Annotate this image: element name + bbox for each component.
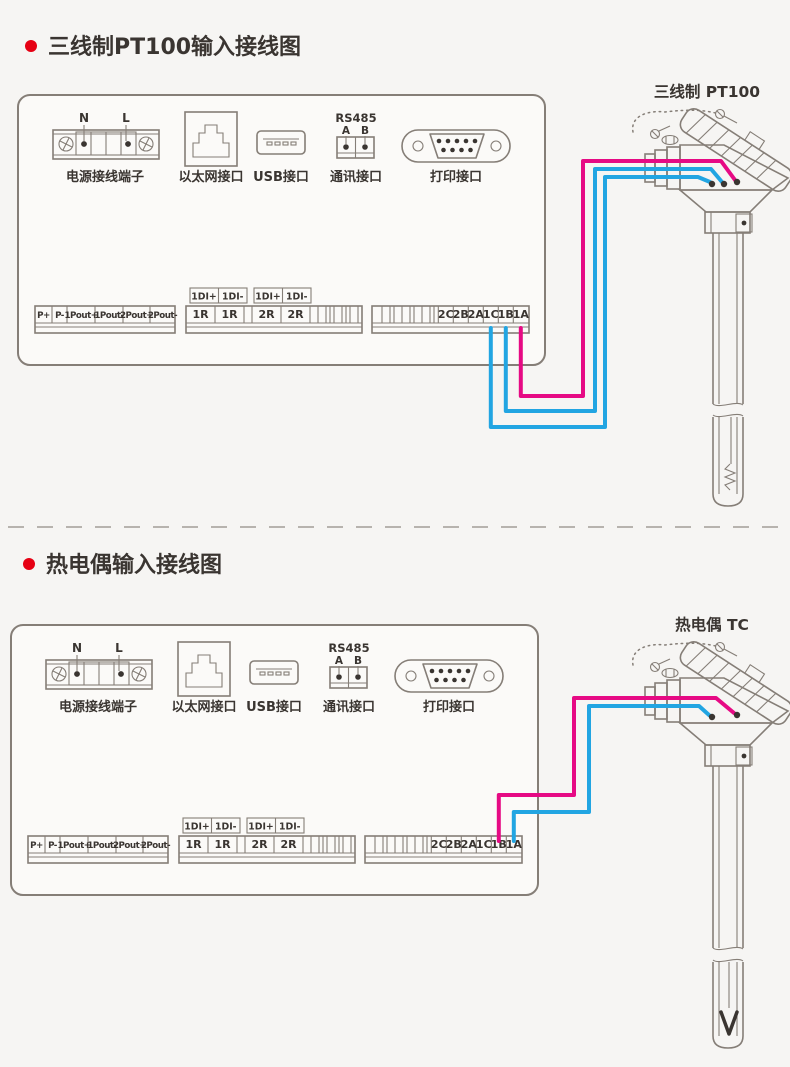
tube-break — [713, 959, 743, 961]
device-panel — [18, 95, 545, 365]
head-terminal-dot — [709, 181, 715, 187]
tube-break — [713, 403, 743, 405]
head-terminal-dot — [734, 179, 740, 185]
bullet-icon — [25, 40, 37, 52]
pt100-section: 三线制PT100输入接线图 三线制 PT100 — [18, 34, 790, 506]
section-title: 热电偶输入接线图 — [46, 552, 222, 578]
sensor-pt100-head — [633, 97, 790, 233]
head-terminal-dot — [709, 714, 715, 720]
sensor-pt100-probe — [713, 233, 743, 506]
head-terminal-dot — [721, 181, 727, 187]
sensor-label: 热电偶 TC — [675, 615, 749, 634]
wire-1a — [514, 706, 709, 841]
rtd-element-icon — [725, 464, 735, 490]
wiring-diagram-page: N L 电源接线端子 — [0, 0, 790, 1067]
sensor-tc-probe — [713, 766, 743, 1048]
wire-1a — [521, 161, 735, 396]
head-terminal-dot — [734, 712, 740, 718]
tube-break — [713, 947, 743, 949]
tc-junction-icon — [721, 1012, 737, 1034]
tube-break — [713, 414, 743, 416]
tc-section: 热电偶输入接线图 热电偶 TC — [11, 552, 790, 1048]
device-panel — [11, 625, 538, 895]
bullet-icon — [23, 558, 35, 570]
sensor-label: 三线制 PT100 — [654, 82, 760, 101]
section-title: 三线制PT100输入接线图 — [48, 34, 301, 60]
wiring-diagram-canvas: N L 电源接线端子 — [0, 0, 790, 1067]
